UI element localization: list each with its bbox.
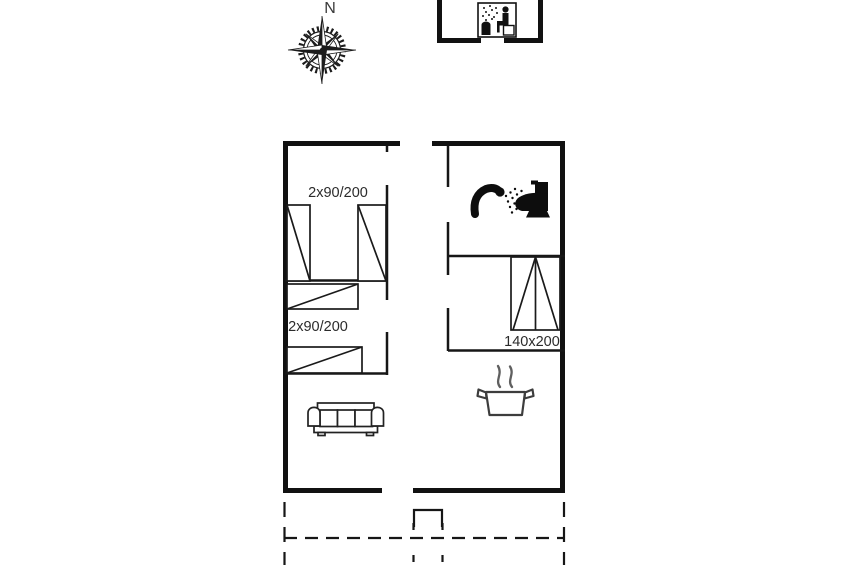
sauna-pictogram-icon	[478, 3, 516, 37]
bedroom-top-left	[287, 205, 386, 281]
floor-plan-drawing: N	[0, 0, 848, 565]
compass-north-label: N	[324, 0, 336, 17]
bed-size-label: 140x200	[504, 334, 560, 350]
shower-icon	[474, 187, 522, 214]
sauna-bench-icon	[504, 26, 515, 36]
bed-size-label: 2x90/200	[308, 185, 368, 201]
double-bed-icon	[511, 257, 560, 330]
dashed-terrace-outline	[284, 502, 565, 565]
steam-wisp	[510, 367, 512, 388]
single-bed-icon	[287, 347, 362, 373]
toilet-icon	[515, 181, 550, 218]
single-bed-icon	[358, 205, 386, 281]
single-bed-icon	[287, 284, 358, 309]
sauna-stove-icon	[482, 22, 491, 35]
floor-plan-page: N	[0, 0, 848, 565]
compass-rose-icon	[288, 16, 356, 84]
bed-size-label: 2x90/200	[288, 319, 348, 335]
compass-rose: N	[288, 0, 356, 84]
steam-wisp	[498, 366, 500, 387]
sofa-icon	[308, 403, 384, 436]
entrance-step	[414, 510, 442, 527]
stove-pot-icon	[478, 366, 534, 415]
single-bed-icon	[287, 205, 310, 281]
